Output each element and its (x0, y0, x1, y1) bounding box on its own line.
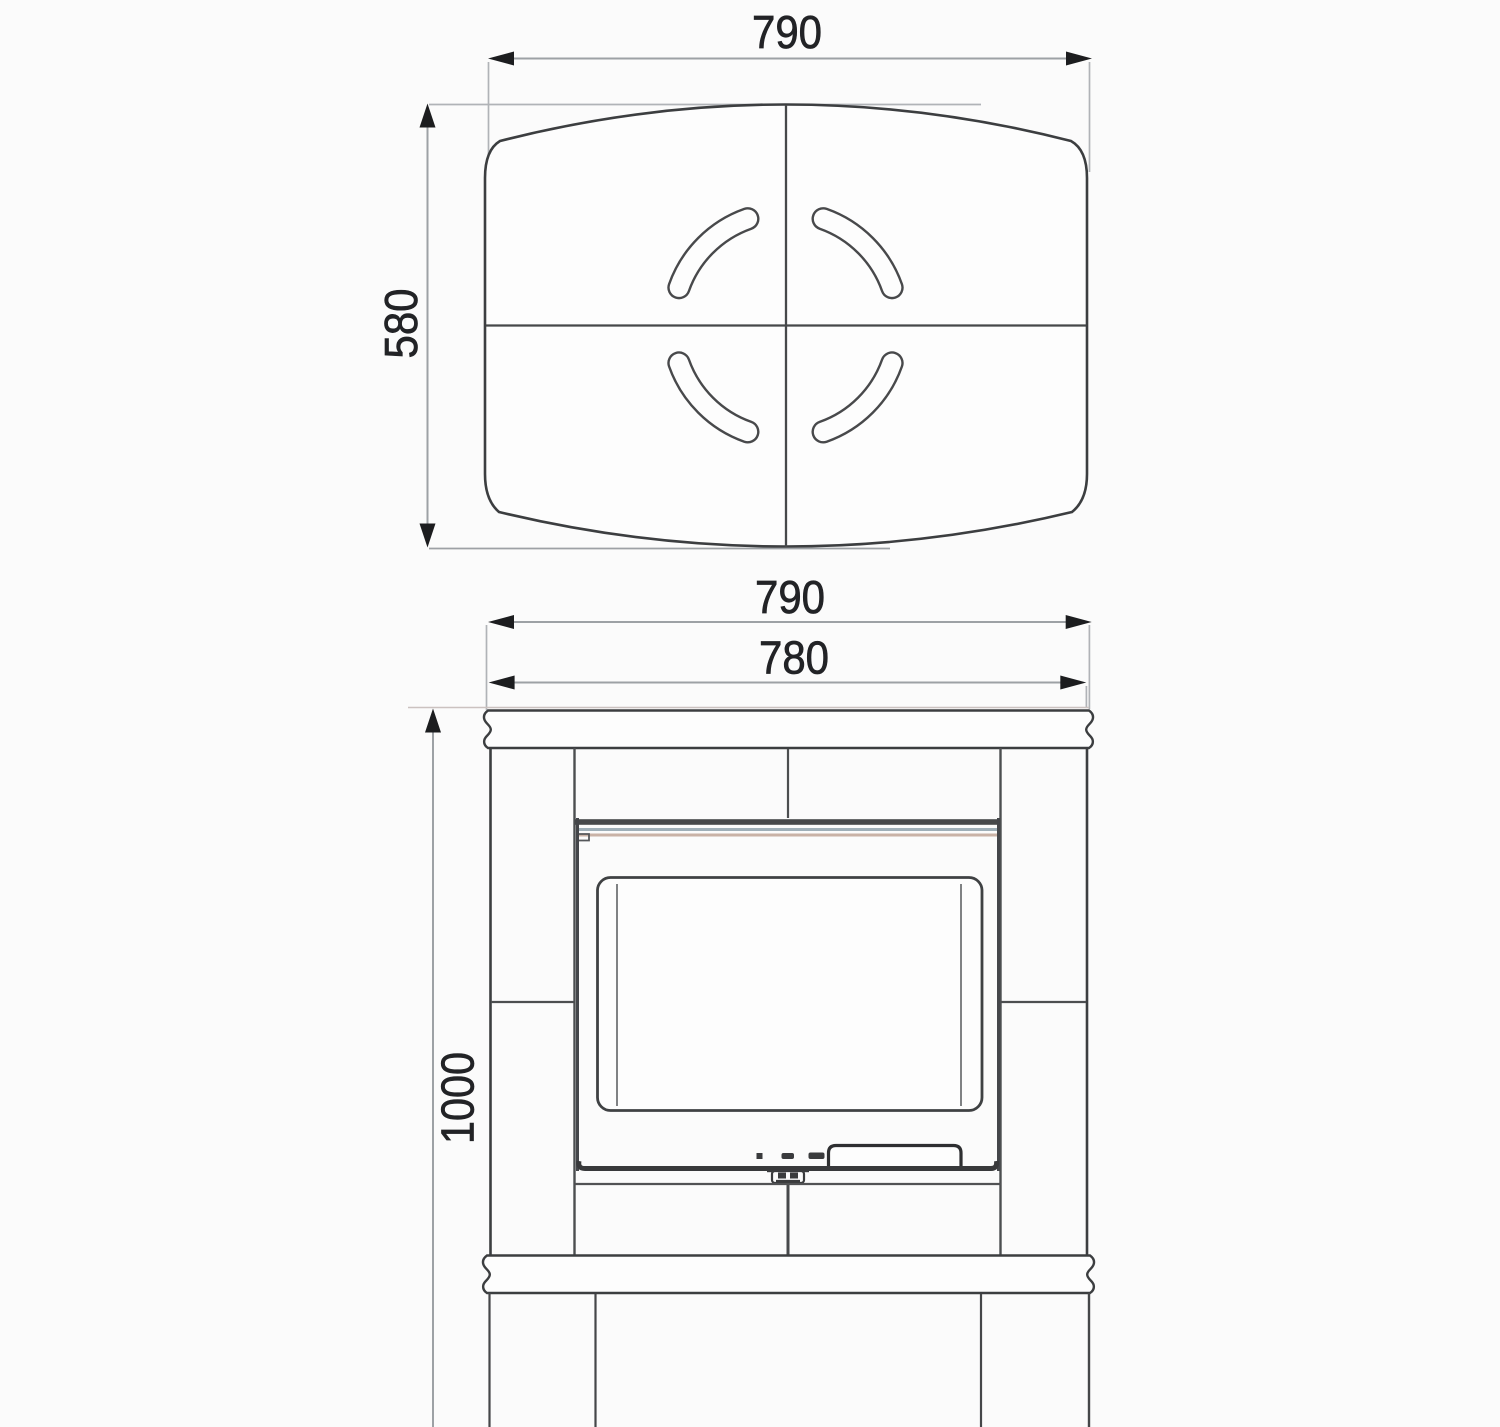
svg-text:580: 580 (375, 289, 427, 359)
svg-text:1000: 1000 (432, 1052, 484, 1144)
svg-text:790: 790 (755, 571, 825, 623)
svg-text:790: 790 (752, 6, 822, 58)
svg-text:780: 780 (759, 632, 829, 684)
